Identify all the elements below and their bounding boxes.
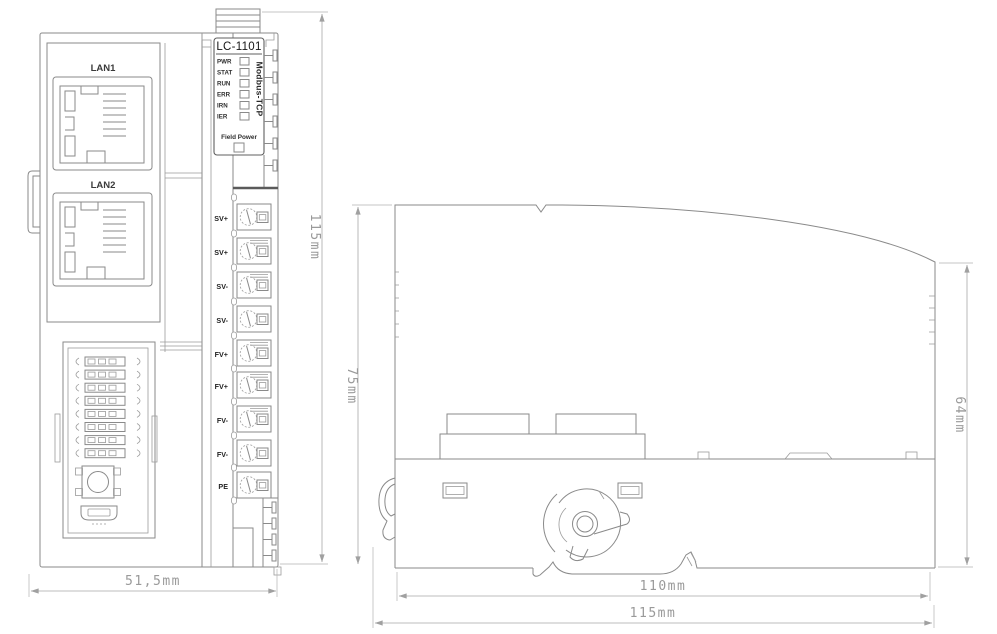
terminal-labels: SV+ SV+ SV- SV- FV+ FV+ FV- FV- PE: [214, 214, 228, 491]
drawing-canvas: LAN1 LAN2: [0, 0, 997, 634]
terminal-pe: [237, 472, 271, 498]
dim-front-height: 115mm: [262, 12, 328, 564]
led-label-ier: IER: [217, 114, 228, 121]
rail-foot-hatch: [687, 553, 696, 566]
micro-usb-port-icon: [81, 506, 117, 524]
dim-side-height-label: 75mm: [344, 367, 359, 404]
led-label-stat: STAT: [217, 70, 232, 77]
terminal-fv-minus-1: [237, 406, 271, 432]
din-rail-seat: [533, 552, 703, 576]
top-bus-connector-icon: [216, 9, 260, 33]
split-line-details: [698, 452, 917, 459]
led-label-run: RUN: [217, 81, 231, 88]
model-label: LC-1101: [216, 41, 261, 53]
dimensions: 115mm 51,5mm 75mm 64mm 110mm: [29, 12, 973, 628]
terminal-fv-plus-2: [237, 372, 271, 398]
led-label-err: ERR: [217, 92, 231, 99]
dim-front-width: 51,5mm: [29, 569, 277, 597]
io-connector-block: [55, 342, 157, 538]
terminal-label-2: SV-: [216, 282, 228, 291]
front-panel: LAN1 LAN2: [47, 43, 160, 322]
rotary-switch-icon: [76, 466, 121, 498]
terminal-fv-minus-2: [237, 440, 271, 466]
protocol-label: Modbus-TCP: [255, 62, 265, 117]
terminal-label-7: FV-: [217, 450, 229, 459]
lan2-port-icon: [53, 193, 152, 286]
dim-side-height: 75mm: [344, 205, 392, 564]
led-panel: LC-1101 PWR STAT RUN ERR IRN IER Modbus-…: [214, 38, 265, 155]
dim-side-right-height: 64mm: [938, 263, 973, 567]
din-rail-lock-icon: [544, 489, 630, 561]
din-clip-front: [28, 171, 40, 233]
strip-lower-block: [233, 528, 253, 567]
side-view: [379, 205, 935, 576]
field-power-label: Field Power: [221, 134, 257, 141]
connector-slot-rows: [76, 357, 140, 458]
terminal-label-6: FV-: [217, 416, 229, 425]
terminal-label-5: FV+: [215, 382, 228, 391]
terminal-label-0: SV+: [214, 214, 228, 223]
dim-front-width-label: 51,5mm: [125, 574, 181, 589]
terminal-label-3: SV-: [216, 316, 228, 325]
terminal-blocks-side: [440, 414, 645, 459]
strip-tabs: [232, 194, 237, 504]
technical-drawing-page: LAN1 LAN2: [0, 0, 997, 634]
terminal-label-4: FV+: [215, 350, 228, 359]
dim-side-inner-width-label: 110mm: [640, 579, 687, 594]
terminal-sv-plus-2: [237, 238, 271, 264]
dim-side-inner-width: 110mm: [397, 572, 930, 601]
lan1-port-icon: [53, 77, 152, 170]
dim-side-outer-width-label: 115mm: [630, 606, 677, 621]
terminal-fv-plus-1: [237, 340, 271, 366]
led-label-irn: IRN: [217, 103, 228, 110]
bus-hooks-top: [264, 50, 277, 171]
dim-front-height-label: 115mm: [307, 214, 322, 261]
terminal-sv-minus-1: [237, 272, 271, 298]
dim-side-right-height-label: 64mm: [952, 396, 967, 433]
din-clip-side: [379, 478, 395, 540]
bus-hooks-bottom: [263, 502, 276, 561]
terminal-sv-plus-1: [237, 204, 271, 230]
side-outline: [395, 205, 935, 568]
terminal-strip: SV+ SV+ SV- SV- FV+ FV+ FV- FV- PE: [214, 188, 278, 567]
led-label-pwr: PWR: [217, 59, 232, 66]
front-view: LAN1 LAN2: [28, 9, 281, 575]
terminal-label-1: SV+: [214, 248, 228, 257]
lan1-label: LAN1: [91, 63, 117, 74]
terminal-label-8: PE: [218, 482, 228, 491]
latch-windows: [443, 483, 642, 498]
terminal-sv-minus-2: [237, 306, 271, 332]
lan2-label: LAN2: [91, 180, 116, 191]
vent-marks: [395, 272, 935, 344]
